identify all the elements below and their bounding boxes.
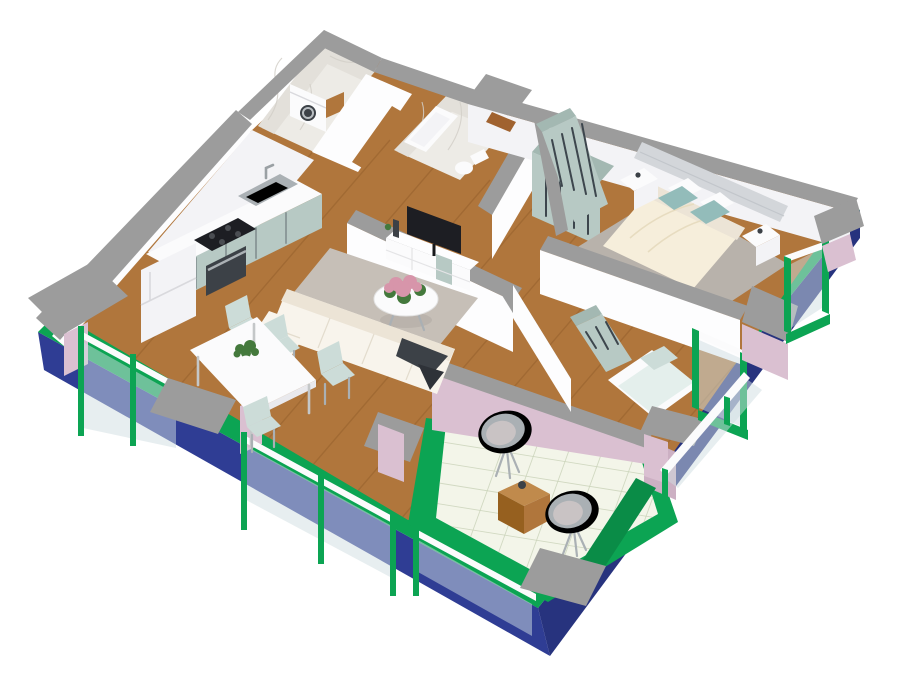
floor-plan-3d-render [0,0,900,689]
railing-post [318,474,324,564]
pillar-pink [378,424,404,482]
railing-post [78,326,84,436]
railing-post [390,514,396,596]
vase [518,481,526,489]
railing-post [130,354,136,446]
decor-plant [385,224,391,230]
decor-bottle [393,219,399,238]
floor-plan-canvas [0,0,900,689]
railing-post [413,526,419,596]
railing-post [241,432,247,530]
